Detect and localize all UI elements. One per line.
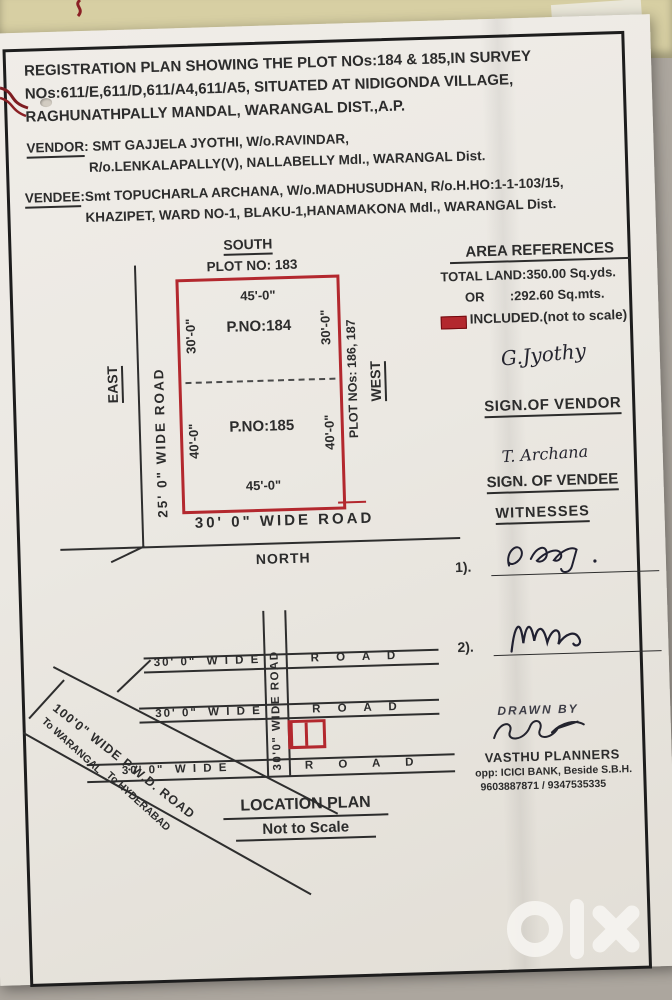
plot-top-dimension: 45'-0"	[179, 286, 337, 306]
plot-divider-dashed	[185, 378, 335, 384]
vendee-label: VENDEE	[25, 189, 81, 209]
drawn-by-firm: VASTHU PLANNERS	[484, 746, 619, 765]
vendor-signature: G.Jyothy	[500, 338, 587, 370]
vertical-road-left-line	[262, 611, 269, 777]
witness-1-number: 1).	[455, 559, 472, 575]
area-or-line: OR :292.60 Sq.mts.	[465, 286, 605, 305]
witness-2-signature	[502, 610, 623, 658]
plot-rectangle: 45'-0" 30'-0" 30'-0" P.NO:184 40'-0" 40'…	[175, 274, 346, 514]
plot1-name: P.NO:184	[180, 316, 338, 338]
sign-of-vendor-caption: SIGN.OF VENDOR	[484, 394, 622, 418]
binding-thread-left	[0, 80, 44, 124]
plot-marker-divider	[305, 723, 309, 746]
witness-2-number: 2).	[457, 639, 474, 655]
binding-thread-top	[62, 0, 102, 20]
vendee-signature: T. Archana	[501, 442, 588, 467]
hroad1-label-left: 30' 0" W I D E	[154, 654, 261, 669]
drawn-by-address: opp: ICICI BANK, Beside S.B.H.	[475, 763, 632, 780]
witnesses-heading: WITNESSES	[495, 503, 590, 525]
south-label: SOUTH	[223, 235, 273, 255]
plot-location-marker	[288, 719, 327, 749]
hroad3-label-right: R O A D	[305, 756, 425, 772]
vendor-block: VENDOR: SMT GAJJELA JYOTHI, W/o.RAVINDAR…	[26, 124, 486, 180]
document-border-frame: REGISTRATION PLAN SHOWING THE PLOT NOs:1…	[2, 31, 652, 987]
adjacent-plot-183: PLOT NO: 183	[192, 256, 312, 275]
scanned-registration-plan: REGISTRATION PLAN SHOWING THE PLOT NOs:1…	[0, 0, 672, 1000]
plot2-name: P.NO:185	[183, 416, 341, 438]
right-plots-label: PLOT NOs: 186, 187	[344, 319, 362, 438]
plot-bottom-extension	[338, 501, 366, 504]
drawn-by-signature	[485, 711, 596, 750]
left-road-label: 25' 0" WIDE ROAD	[151, 367, 170, 518]
page-title: REGISTRATION PLAN SHOWING THE PLOT NOs:1…	[24, 45, 533, 129]
north-label: NORTH	[221, 548, 346, 568]
left-road-line	[134, 266, 144, 547]
location-plan-title: LOCATION PLAN	[223, 793, 389, 820]
vertical-road-right-line	[284, 610, 291, 776]
bottom-road-line	[60, 537, 460, 551]
witness-1-signature	[498, 534, 629, 576]
vendor-label: VENDOR	[26, 139, 84, 159]
paper-page: REGISTRATION PLAN SHOWING THE PLOT NOs:1…	[0, 14, 672, 986]
east-label: EAST	[104, 366, 124, 404]
hroad1-label-right: R O A D	[311, 650, 403, 665]
drawn-by-phones: 9603887871 / 9347535335	[480, 778, 606, 794]
sign-of-vendee-caption: SIGN. OF VENDEE	[486, 470, 618, 494]
vendee-block: VENDEE:Smt TOPUCHARLA ARCHANA, W/o.MADHU…	[25, 172, 565, 230]
area-included-label: INCLUDED.(not to scale)	[469, 307, 627, 327]
location-plan-subtitle: Not to Scale	[236, 818, 377, 842]
area-references-heading: AREA REFERENCES	[449, 239, 630, 264]
olx-watermark	[505, 893, 645, 965]
pwd-road-connector	[117, 659, 152, 692]
area-total-land: TOTAL LAND:350.00 Sq.yds.	[440, 264, 616, 284]
plot-bottom-dimension: 45'-0"	[184, 475, 342, 495]
west-label: WEST	[367, 361, 387, 402]
included-swatch	[441, 316, 467, 330]
